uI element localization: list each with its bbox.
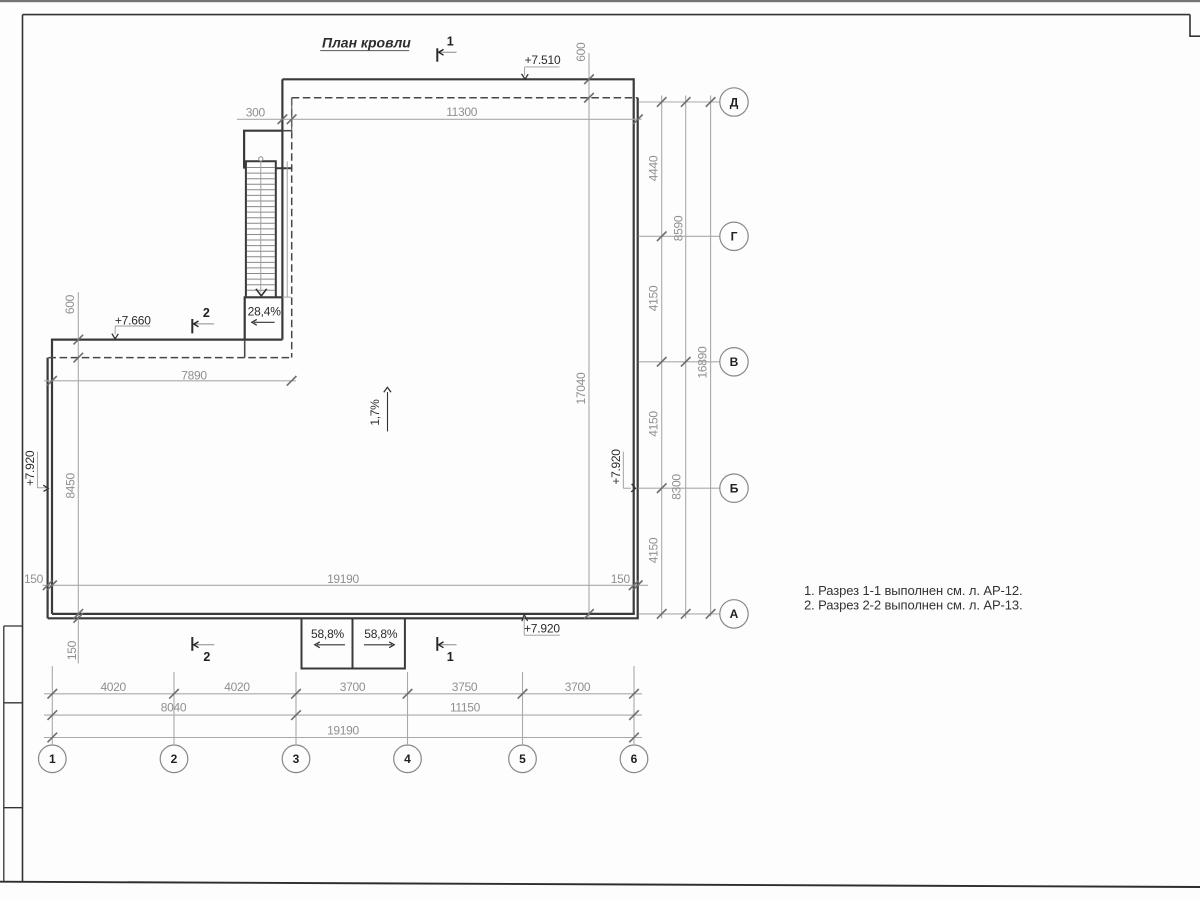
svg-text:1: 1 (447, 34, 454, 48)
svg-text:5: 5 (519, 752, 526, 766)
svg-text:+7.920: +7.920 (609, 449, 623, 485)
svg-text:+7.660: +7.660 (115, 313, 151, 327)
svg-text:3700: 3700 (565, 680, 591, 694)
svg-text:4020: 4020 (100, 680, 126, 694)
svg-text:1: 1 (447, 650, 454, 664)
svg-text:3750: 3750 (452, 680, 478, 694)
svg-text:58,8%: 58,8% (364, 627, 398, 641)
svg-text:58,8%: 58,8% (311, 627, 345, 641)
svg-text:150: 150 (611, 572, 631, 586)
svg-text:8040: 8040 (161, 700, 187, 714)
svg-text:1. Разрез 1-1 выполнен см. л.: 1. Разрез 1-1 выполнен см. л. АР-12. (804, 583, 1023, 598)
svg-text:+7.920: +7.920 (524, 621, 560, 635)
svg-text:19190: 19190 (327, 724, 359, 738)
svg-text:4150: 4150 (647, 411, 661, 437)
svg-text:4150: 4150 (647, 537, 661, 563)
svg-text:2: 2 (203, 306, 210, 320)
svg-text:4020: 4020 (224, 680, 250, 694)
svg-text:17040: 17040 (574, 372, 588, 404)
svg-text:В: В (730, 355, 739, 369)
svg-text:11300: 11300 (446, 105, 478, 119)
svg-text:8590: 8590 (672, 215, 686, 241)
svg-text:6: 6 (631, 752, 638, 766)
svg-text:1,7%: 1,7% (368, 399, 382, 426)
svg-text:8450: 8450 (63, 473, 77, 499)
svg-text:150: 150 (24, 572, 44, 586)
svg-text:2: 2 (171, 752, 178, 766)
svg-text:Д: Д (730, 95, 739, 109)
svg-text:16890: 16890 (696, 346, 710, 378)
svg-text:600: 600 (63, 294, 77, 314)
svg-text:7890: 7890 (181, 368, 207, 382)
svg-text:28,4%: 28,4% (248, 304, 282, 318)
svg-text:11150: 11150 (450, 700, 481, 714)
svg-text:8300: 8300 (670, 474, 684, 500)
svg-text:План кровли: План кровли (322, 35, 411, 51)
svg-text:3700: 3700 (340, 680, 366, 694)
svg-text:+7.510: +7.510 (525, 53, 561, 67)
svg-text:А: А (730, 607, 739, 621)
svg-text:4440: 4440 (647, 155, 661, 181)
svg-text:1: 1 (49, 752, 56, 766)
svg-text:19190: 19190 (327, 572, 359, 586)
svg-text:4150: 4150 (647, 285, 661, 311)
svg-text:4: 4 (404, 752, 411, 766)
svg-text:150: 150 (65, 640, 79, 660)
svg-text:Б: Б (730, 482, 739, 496)
svg-text:300: 300 (246, 106, 266, 120)
svg-text:+7.920: +7.920 (23, 450, 37, 486)
svg-text:2. Разрез 2-2 выполнен см. л.: 2. Разрез 2-2 выполнен см. л. АР-13. (804, 598, 1023, 613)
svg-text:Г: Г (731, 230, 738, 244)
svg-text:3: 3 (293, 752, 300, 766)
svg-text:600: 600 (574, 42, 588, 62)
svg-text:2: 2 (203, 650, 210, 664)
